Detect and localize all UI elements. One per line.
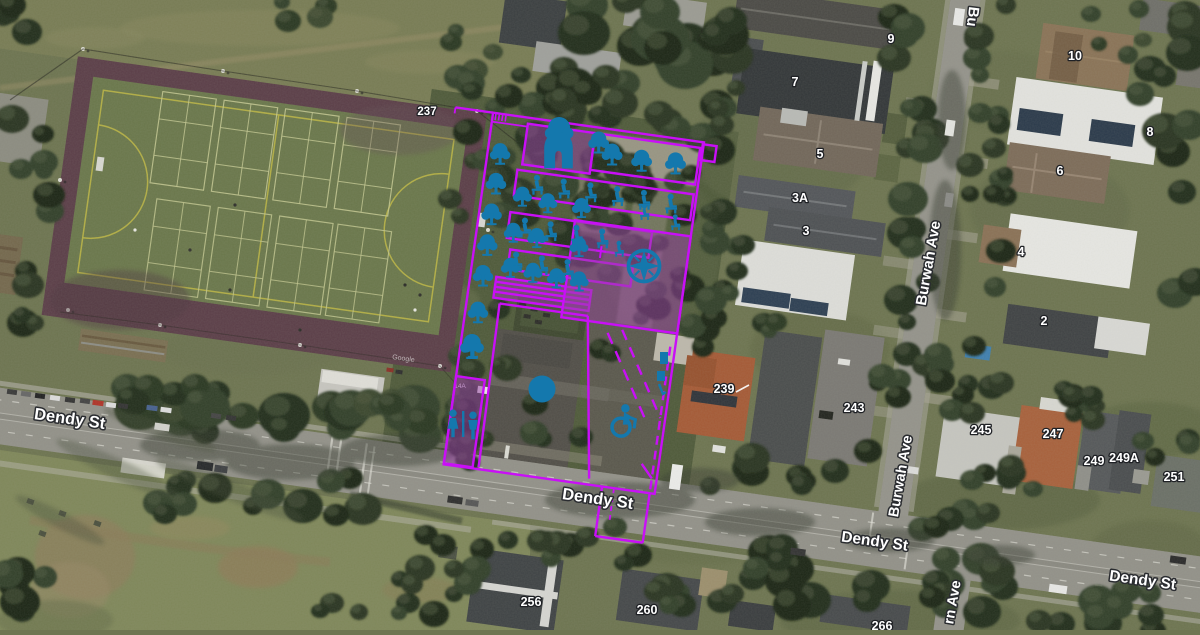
svg-text:3: 3 xyxy=(803,224,810,238)
svg-text:9: 9 xyxy=(888,32,895,46)
svg-text:266: 266 xyxy=(872,619,893,630)
svg-text:260: 260 xyxy=(637,603,658,617)
svg-text:247: 247 xyxy=(1043,427,1064,441)
svg-text:Bu: Bu xyxy=(963,6,982,28)
svg-text:237: 237 xyxy=(417,106,436,118)
svg-text:5: 5 xyxy=(817,147,824,161)
svg-text:8: 8 xyxy=(1147,125,1154,139)
svg-text:239: 239 xyxy=(714,382,735,396)
svg-text:243: 243 xyxy=(844,401,865,415)
svg-text:2: 2 xyxy=(1041,314,1048,328)
svg-text:10: 10 xyxy=(1068,49,1082,63)
svg-text:245: 245 xyxy=(971,423,992,437)
svg-text:4: 4 xyxy=(1018,245,1025,259)
svg-text:6: 6 xyxy=(1057,164,1064,178)
svg-text:249A: 249A xyxy=(1109,451,1139,465)
svg-text:251: 251 xyxy=(1164,470,1185,484)
svg-text:3A: 3A xyxy=(792,191,808,205)
svg-text:249: 249 xyxy=(1084,454,1105,468)
svg-text:256: 256 xyxy=(521,595,542,609)
svg-text:7: 7 xyxy=(792,75,799,89)
